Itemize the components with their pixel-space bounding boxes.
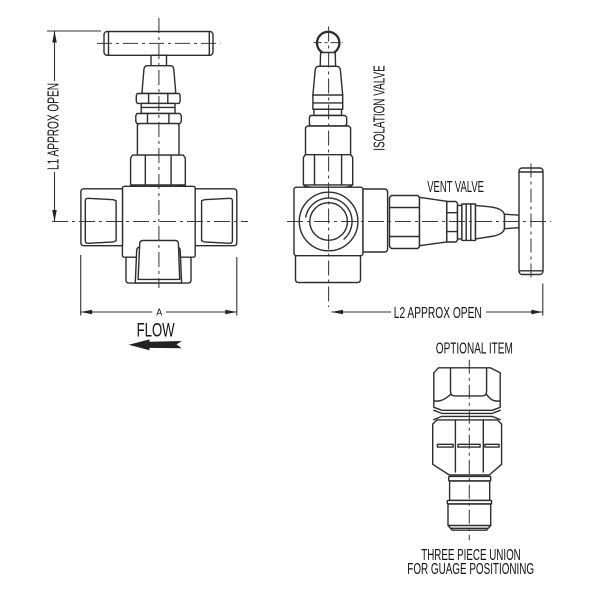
svg-text:FOR GUAGE POSITIONING: FOR GUAGE POSITIONING (407, 561, 534, 578)
svg-text:FLOW: FLOW (137, 321, 176, 342)
svg-text:L1 APPROX OPEN: L1 APPROX OPEN (46, 83, 63, 170)
svg-text:OPTIONAL ITEM: OPTIONAL ITEM (436, 341, 513, 358)
svg-text:VENT VALVE: VENT VALVE (427, 179, 484, 196)
svg-text:L2 APPROX OPEN: L2 APPROX OPEN (394, 305, 482, 322)
svg-text:A: A (156, 306, 162, 318)
svg-text:ISOLATION VALVE: ISOLATION VALVE (372, 65, 389, 150)
